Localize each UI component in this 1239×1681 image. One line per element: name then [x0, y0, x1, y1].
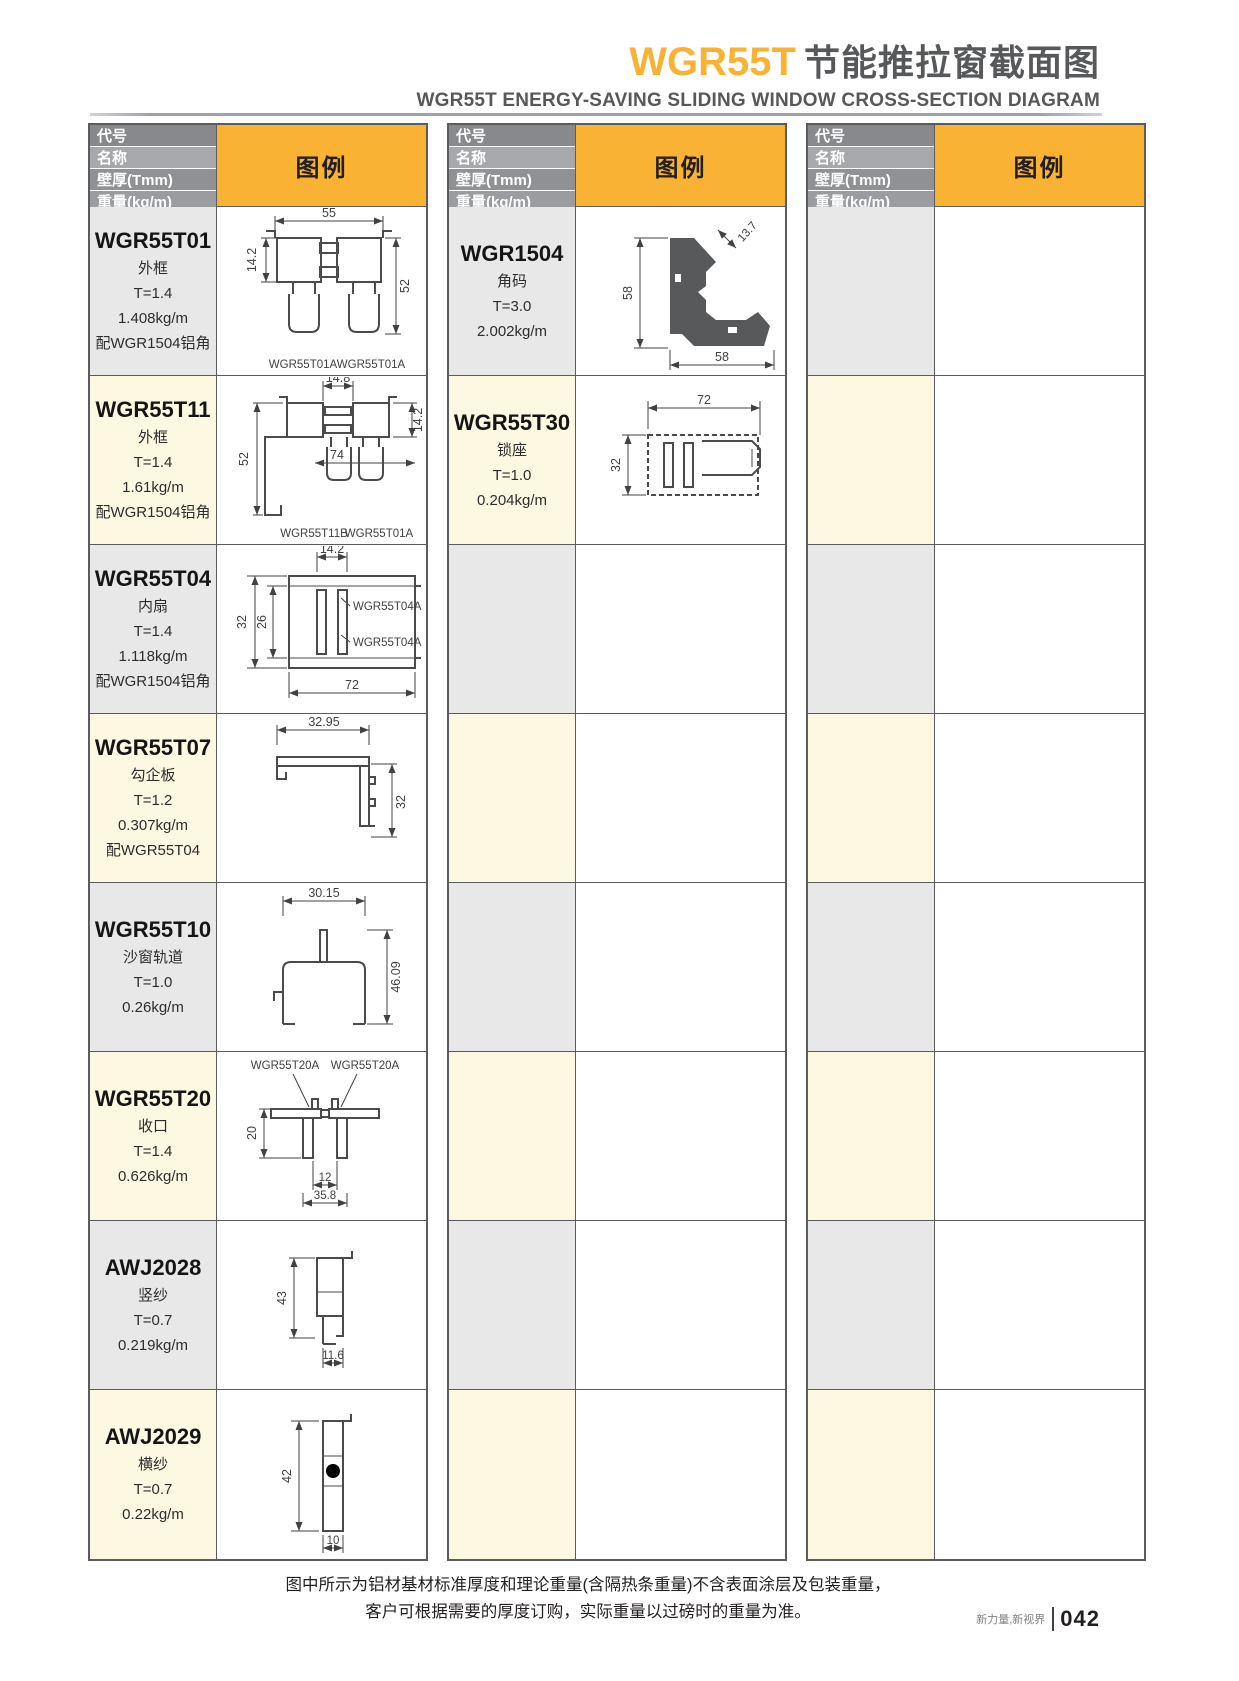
profile-weight: 1.408kg/m — [118, 306, 188, 331]
profile-name: 外框 — [138, 425, 168, 450]
dimension-label: 32.95 — [308, 715, 339, 729]
page-subtitle: WGR55T ENERGY-SAVING SLIDING WINDOW CROS… — [88, 90, 1100, 112]
profile-code: WGR1504 — [461, 239, 564, 269]
profile-thickness: T=0.7 — [134, 1477, 173, 1502]
profile-code: WGR55T01 — [95, 226, 211, 256]
cross-section-diagram: 42 10 — [219, 1391, 425, 1558]
diagram-cell: 58 58 13.7 — [576, 207, 785, 375]
profile-name: 横纱 — [138, 1452, 168, 1477]
dimension-label: 20 — [245, 1126, 259, 1140]
footnote: 图中所示为铝材基材标准厚度和理论重量(含隔热条重量)不含表面涂层及包装重量， 客… — [88, 1572, 1088, 1626]
dimension-label: 13.7 — [735, 219, 759, 244]
dimension-label: 26 — [255, 615, 269, 629]
profile-code: WGR55T11 — [96, 395, 211, 425]
cross-section-diagram: 14.2 32 26 72 WGR55T04A WGR55T04A — [219, 546, 425, 713]
footnote-line-2: 客户可根据需要的厚度订购，实际重量以过磅时的重量为准。 — [88, 1599, 1088, 1626]
table-row — [449, 714, 785, 883]
row-label-cell: WGR55T01 外框 T=1.4 1.408kg/m 配WGR1504铝角 — [90, 207, 217, 375]
row-label-cell: WGR55T07 勾企板 T=1.2 0.307kg/m 配WGR55T04 — [90, 714, 217, 882]
table-row — [808, 207, 1144, 376]
dimension-label: 14.2 — [245, 247, 259, 271]
title-divider — [90, 113, 1102, 116]
row-label-cell — [808, 883, 935, 1051]
header-label-stack: 代号 名称 壁厚(Tmm) 重量(kg/m) — [808, 125, 935, 206]
table-row: WGR55T01 外框 T=1.4 1.408kg/m 配WGR1504铝角 — [90, 207, 426, 376]
dimension-label: 32 — [609, 458, 623, 472]
dimension-label: 12 — [318, 1172, 331, 1184]
dimension-label: 35.8 — [313, 1190, 335, 1202]
diagram-cell: WGR55T20A WGR55T20A 20 — [217, 1052, 426, 1220]
profile-ref-label: WGR55T01A — [344, 528, 413, 540]
row-label-cell: WGR55T10 沙窗轨道 T=1.0 0.26kg/m — [90, 883, 217, 1051]
profile-weight: 0.26kg/m — [122, 995, 184, 1020]
profile-code: WGR55T04 — [95, 564, 211, 594]
profile-thickness: T=1.4 — [134, 281, 173, 306]
profile-weight: 1.61kg/m — [122, 475, 184, 500]
table-header: 代号 名称 壁厚(Tmm) 重量(kg/m) 图例 — [808, 125, 1144, 207]
footnote-line-1: 图中所示为铝材基材标准厚度和理论重量(含隔热条重量)不含表面涂层及包装重量， — [88, 1572, 1088, 1599]
diagram-cell: 14.8 52 74 14.2 — [217, 376, 426, 544]
profile-weight: 0.22kg/m — [122, 1502, 184, 1527]
diagram-cell — [935, 1052, 1144, 1220]
row-label-cell — [449, 1221, 576, 1389]
profile-ref-label: WGR55T11B — [280, 528, 348, 540]
cross-section-diagram: 43 11.6 — [219, 1222, 425, 1389]
header-label-code: 代号 — [449, 125, 575, 147]
row-label-cell: WGR55T20 收口 T=1.4 0.626kg/m — [90, 1052, 217, 1220]
dimension-label: 43 — [275, 1291, 289, 1305]
dimension-label: 14.2 — [411, 407, 425, 431]
dimension-label: 32 — [394, 795, 408, 809]
profile-name: 角码 — [497, 269, 527, 294]
profile-thickness: T=1.4 — [134, 1139, 173, 1164]
profile-name: 内扇 — [138, 594, 168, 619]
row-label-cell: WGR55T30 锁座 T=1.0 0.204kg/m — [449, 376, 576, 544]
profile-outline — [670, 238, 770, 346]
table-header: 代号 名称 壁厚(Tmm) 重量(kg/m) 图例 — [449, 125, 785, 207]
cross-section-diagram: 32.95 32 — [219, 715, 425, 882]
table-row — [808, 1221, 1144, 1390]
profile-outline — [289, 576, 421, 668]
page-footer: 新力量,新视界 042 — [976, 1606, 1100, 1632]
profile-weight: 1.118kg/m — [119, 644, 188, 669]
diagram-cell — [576, 1221, 785, 1389]
profile-outline — [648, 435, 760, 495]
table-row — [808, 376, 1144, 545]
page-title-code: WGR55T — [629, 40, 796, 84]
diagram-cell: 55 14.2 52 WGR55T01A — [217, 207, 426, 375]
row-label-cell — [449, 1390, 576, 1559]
spec-table-3: 代号 名称 壁厚(Tmm) 重量(kg/m) 图例 — [806, 123, 1146, 1561]
row-label-cell — [808, 1052, 935, 1220]
profile-weight: 0.307kg/m — [118, 813, 188, 838]
table-row — [808, 883, 1144, 1052]
dimension-lines — [283, 896, 393, 1024]
dimension-label: 58 — [621, 286, 635, 300]
cross-section-diagram: 55 14.2 52 WGR55T01A — [219, 208, 425, 375]
row-label-cell — [449, 883, 576, 1051]
table-header: 代号 名称 壁厚(Tmm) 重量(kg/m) 图例 — [90, 125, 426, 207]
dimension-label: 32 — [235, 615, 249, 629]
table-row: WGR55T07 勾企板 T=1.2 0.307kg/m 配WGR55T04 — [90, 714, 426, 883]
dimension-lines — [622, 401, 760, 495]
table-row — [449, 1390, 785, 1559]
profile-ref-label: WGR55T04A — [353, 637, 422, 649]
profile-ref-label: WGR55T20A — [330, 1060, 399, 1072]
header-label-thickness: 壁厚(Tmm) — [808, 169, 934, 191]
diagram-cell: 30.15 46.09 — [217, 883, 426, 1051]
header-label-name: 名称 — [90, 147, 216, 169]
row-label-cell — [808, 1221, 935, 1389]
table-row: WGR55T30 锁座 T=1.0 0.204kg/m 72 — [449, 376, 785, 545]
profile-weight: 2.002kg/m — [477, 319, 547, 344]
header-label-name: 名称 — [808, 147, 934, 169]
row-label-cell: WGR55T11 外框 T=1.4 1.61kg/m 配WGR1504铝角 — [90, 376, 217, 544]
footer-divider — [1052, 1607, 1054, 1631]
cross-section-diagram: 30.15 46.09 — [219, 884, 425, 1051]
profile-ref-label: WGR55T01A — [268, 359, 337, 371]
profile-code: WGR55T20 — [95, 1084, 211, 1114]
profile-outline — [277, 757, 375, 826]
header-label-code: 代号 — [90, 125, 216, 147]
table-row: WGR55T04 内扇 T=1.4 1.118kg/m 配WGR1504铝角 — [90, 545, 426, 714]
row-label-cell — [449, 1052, 576, 1220]
cross-section-diagram: 72 32 — [578, 377, 784, 544]
diagram-cell — [576, 1052, 785, 1220]
profile-outline — [317, 1251, 352, 1344]
cross-section-diagram: 14.8 52 74 14.2 — [219, 377, 425, 544]
cross-section-diagram: 58 58 13.7 — [578, 208, 784, 375]
row-label-cell — [808, 207, 935, 375]
profile-code: WGR55T30 — [454, 408, 570, 438]
diagram-cell — [576, 714, 785, 882]
header-label-stack: 代号 名称 壁厚(Tmm) 重量(kg/m) — [449, 125, 576, 206]
dimension-label: 52 — [237, 452, 251, 466]
profile-outline — [266, 231, 392, 332]
header-label-name: 名称 — [449, 147, 575, 169]
profile-name: 锁座 — [497, 438, 527, 463]
table-row — [808, 1390, 1144, 1559]
row-label-cell — [449, 714, 576, 882]
legend-header: 图例 — [935, 125, 1144, 206]
profile-name: 沙窗轨道 — [123, 945, 183, 970]
header-label-thickness: 壁厚(Tmm) — [449, 169, 575, 191]
diagram-cell — [935, 1221, 1144, 1389]
header-label-thickness: 壁厚(Tmm) — [90, 169, 216, 191]
table-row — [449, 545, 785, 714]
row-label-cell: WGR55T04 内扇 T=1.4 1.118kg/m 配WGR1504铝角 — [90, 545, 217, 713]
profile-ref-label: WGR55T20A — [250, 1060, 319, 1072]
row-label-cell — [808, 545, 935, 713]
profile-outline — [323, 1414, 351, 1531]
dimension-label: 42 — [280, 1469, 294, 1483]
page-title: WGR55T节能推拉窗截面图 — [88, 34, 1100, 86]
table-row — [449, 1221, 785, 1390]
catalog-page: WGR55T节能推拉窗截面图 WGR55T ENERGY-SAVING SLID… — [0, 0, 1239, 1681]
row-label-cell: AWJ2028 竖纱 T=0.7 0.219kg/m — [90, 1221, 217, 1389]
dimension-label: 11.6 — [322, 1350, 344, 1362]
diagram-cell — [935, 883, 1144, 1051]
table-row — [449, 883, 785, 1052]
table-row: WGR55T20 收口 T=1.4 0.626kg/m WGR55T20A WG… — [90, 1052, 426, 1221]
diagram-cell: 32.95 32 — [217, 714, 426, 882]
dimension-label: 46.09 — [389, 961, 403, 992]
diagram-cell — [935, 714, 1144, 882]
table-row — [808, 714, 1144, 883]
spec-table-2: 代号 名称 壁厚(Tmm) 重量(kg/m) 图例 WGR1504 角码 T=3… — [447, 123, 787, 1561]
profile-weight: 0.626kg/m — [118, 1164, 188, 1189]
profile-code: WGR55T07 — [95, 733, 211, 763]
profile-name: 勾企板 — [130, 763, 175, 788]
dimension-label: 14.8 — [325, 377, 349, 385]
row-label-cell — [808, 1390, 935, 1559]
table-row — [808, 1052, 1144, 1221]
spec-tables: 代号 名称 壁厚(Tmm) 重量(kg/m) 图例 WGR55T01 外框 T=… — [88, 123, 1146, 1561]
dimension-label: 52 — [398, 279, 412, 293]
profile-outline — [274, 930, 365, 1024]
diagram-cell: 72 32 — [576, 376, 785, 544]
dimension-lines — [259, 1074, 357, 1207]
diagram-cell — [576, 545, 785, 713]
profile-code: AWJ2028 — [105, 1253, 202, 1283]
profile-note: 配WGR1504铝角 — [95, 669, 210, 694]
row-label-cell — [808, 714, 935, 882]
profile-thickness: T=1.0 — [134, 970, 173, 995]
footer-slogan: 新力量,新视界 — [976, 1611, 1045, 1627]
diagram-cell — [935, 1390, 1144, 1559]
diagram-cell: 43 11.6 — [217, 1221, 426, 1389]
dimension-label: 72 — [345, 678, 359, 692]
diagram-cell: 42 10 — [217, 1390, 426, 1559]
profile-note: 配WGR1504铝角 — [95, 500, 210, 525]
page-header: WGR55T节能推拉窗截面图 WGR55T ENERGY-SAVING SLID… — [88, 34, 1100, 112]
legend-header: 图例 — [576, 125, 785, 206]
header-label-stack: 代号 名称 壁厚(Tmm) 重量(kg/m) — [90, 125, 217, 206]
dimension-label: 58 — [715, 350, 729, 364]
dimension-lines — [291, 1421, 343, 1553]
profile-code: WGR55T10 — [95, 915, 211, 945]
profile-name: 外框 — [138, 256, 168, 281]
profile-ref-label: WGR55T04A — [353, 601, 422, 613]
profile-thickness: T=1.2 — [134, 788, 173, 813]
profile-note: 配WGR55T04 — [106, 838, 200, 863]
row-label-cell: WGR1504 角码 T=3.0 2.002kg/m — [449, 207, 576, 375]
profile-thickness: T=1.4 — [134, 619, 173, 644]
table-row — [808, 545, 1144, 714]
profile-thickness: T=1.4 — [134, 450, 173, 475]
diagram-cell — [576, 1390, 785, 1559]
row-label-cell: AWJ2029 横纱 T=0.7 0.22kg/m — [90, 1390, 217, 1559]
table-row: WGR55T10 沙窗轨道 T=1.0 0.26kg/m 30.15 — [90, 883, 426, 1052]
table-row: WGR55T11 外框 T=1.4 1.61kg/m 配WGR1504铝角 — [90, 376, 426, 545]
page-number: 042 — [1060, 1606, 1100, 1632]
diagram-cell — [576, 883, 785, 1051]
profile-weight: 0.204kg/m — [477, 488, 547, 513]
profile-thickness: T=1.0 — [493, 463, 532, 488]
profile-outline — [271, 1099, 379, 1158]
table-row: WGR1504 角码 T=3.0 2.002kg/m 5 — [449, 207, 785, 376]
dimension-label: 72 — [697, 393, 711, 407]
profile-weight: 0.219kg/m — [118, 1333, 188, 1358]
diagram-cell — [935, 207, 1144, 375]
profile-name: 收口 — [138, 1114, 168, 1139]
diagram-cell — [935, 376, 1144, 544]
profile-thickness: T=0.7 — [134, 1308, 173, 1333]
legend-header: 图例 — [217, 125, 426, 206]
table-row — [449, 1052, 785, 1221]
profile-ref-label: WGR55T01A — [336, 359, 405, 371]
profile-note: 配WGR1504铝角 — [95, 331, 210, 356]
diagram-cell — [935, 545, 1144, 713]
table-row: AWJ2029 横纱 T=0.7 0.22kg/m 42 10 — [90, 1390, 426, 1559]
row-label-cell — [449, 545, 576, 713]
profile-name: 竖纱 — [138, 1283, 168, 1308]
diagram-cell: 14.2 32 26 72 WGR55T04A WGR55T04A — [217, 545, 426, 713]
dimension-label: 55 — [322, 208, 336, 220]
page-title-zh: 节能推拉窗截面图 — [804, 42, 1100, 83]
profile-code: AWJ2029 — [105, 1422, 202, 1452]
cross-section-diagram: WGR55T20A WGR55T20A 20 — [219, 1053, 425, 1220]
header-label-code: 代号 — [808, 125, 934, 147]
spec-table-1: 代号 名称 壁厚(Tmm) 重量(kg/m) 图例 WGR55T01 外框 T=… — [88, 123, 428, 1561]
table-row: AWJ2028 竖纱 T=0.7 0.219kg/m 43 1 — [90, 1221, 426, 1390]
profile-thickness: T=3.0 — [493, 294, 532, 319]
dimension-label: 10 — [326, 1535, 339, 1547]
row-label-cell — [808, 376, 935, 544]
dimension-lines — [277, 725, 397, 837]
dimension-label: 14.2 — [319, 546, 343, 556]
dimension-label: 30.15 — [308, 886, 339, 900]
dimension-lines — [247, 552, 415, 698]
dimension-label: 74 — [330, 448, 344, 462]
